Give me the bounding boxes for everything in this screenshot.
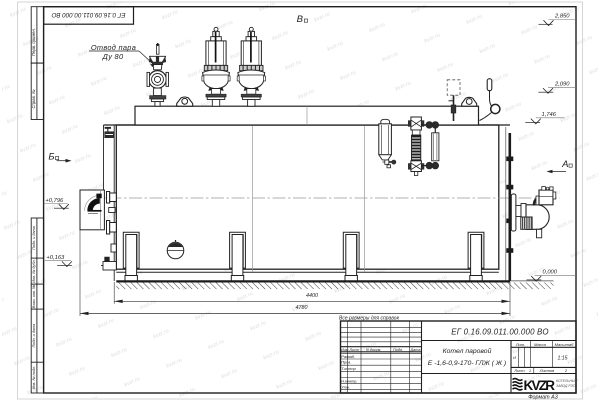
svg-text:Утв.: Утв. <box>341 385 350 389</box>
svg-text:Пров.: Пров. <box>341 361 351 365</box>
svg-text:KVZR: KVZR <box>524 378 556 393</box>
svg-text:1: 1 <box>529 368 531 373</box>
svg-text:Дата: Дата <box>410 348 421 352</box>
svg-text:Инв. № дубл.: Инв. № дубл. <box>32 259 36 282</box>
svg-text:2,850: 2,850 <box>554 14 570 20</box>
svg-text:Подп. и дата: Подп. и дата <box>32 226 36 250</box>
svg-text:2,090: 2,090 <box>554 82 570 88</box>
svg-text:Справ. №: Справ. № <box>31 89 36 108</box>
svg-text:Ду 80: Ду 80 <box>102 52 124 61</box>
svg-text:И: И <box>513 355 516 360</box>
svg-text:Котел паровой: Котел паровой <box>443 347 492 355</box>
svg-text:4780: 4780 <box>296 305 308 311</box>
svg-text:Масштаб: Масштаб <box>555 342 574 347</box>
svg-text:1,746: 1,746 <box>541 112 556 118</box>
svg-text:Лист: Лист <box>513 368 525 373</box>
svg-text:ЗАВОД РЭП: ЗАВОД РЭП <box>556 384 576 388</box>
svg-text:Взам. инв. №: Взам. инв. № <box>32 285 36 308</box>
svg-text:Лит.: Лит. <box>515 342 525 347</box>
svg-text:Подп.: Подп. <box>393 348 403 352</box>
svg-text:+0,796: +0,796 <box>45 198 64 204</box>
svg-text:ЕГ 0.16.09.011.00.000 ВО: ЕГ 0.16.09.011.00.000 ВО <box>451 327 548 336</box>
svg-text:Перв. примен.: Перв. примен. <box>31 28 36 56</box>
svg-text:Разраб.: Разраб. <box>341 355 355 359</box>
svg-text:Изм.: Изм. <box>341 348 349 352</box>
svg-text:Листов: Листов <box>539 368 555 373</box>
svg-text:А: А <box>561 159 568 170</box>
svg-text:1:15: 1:15 <box>557 356 567 362</box>
svg-text:N докум.: N докум. <box>366 348 381 352</box>
svg-text:Масса: Масса <box>534 342 547 347</box>
svg-text:4400: 4400 <box>306 293 318 299</box>
svg-text:Б: Б <box>48 152 54 163</box>
svg-text:В: В <box>297 14 304 25</box>
svg-text:ЕГ 0.16.09.011.00.000 ВО: ЕГ 0.16.09.011.00.000 ВО <box>51 11 125 18</box>
svg-text:Т.контр.: Т.контр. <box>341 367 356 371</box>
svg-text:КОТЕЛЬНЫЙ: КОТЕЛЬНЫЙ <box>556 379 578 383</box>
svg-text:Подп. и дата: Подп. и дата <box>32 324 36 348</box>
svg-text:Е -1,6-0,9-170- ГЛЖ ( Ж ): Е -1,6-0,9-170- ГЛЖ ( Ж ) <box>428 360 506 367</box>
svg-text:Н.контр.: Н.контр. <box>341 379 357 383</box>
svg-text:Отвод пара: Отвод пара <box>91 43 136 52</box>
svg-text:0,000: 0,000 <box>542 269 557 275</box>
svg-text:+0,163: +0,163 <box>46 255 65 261</box>
svg-text:Лист: Лист <box>349 348 360 352</box>
svg-text:Инв. № подл.: Инв. № подл. <box>32 366 36 390</box>
svg-text:Формат А3: Формат А3 <box>528 395 558 400</box>
